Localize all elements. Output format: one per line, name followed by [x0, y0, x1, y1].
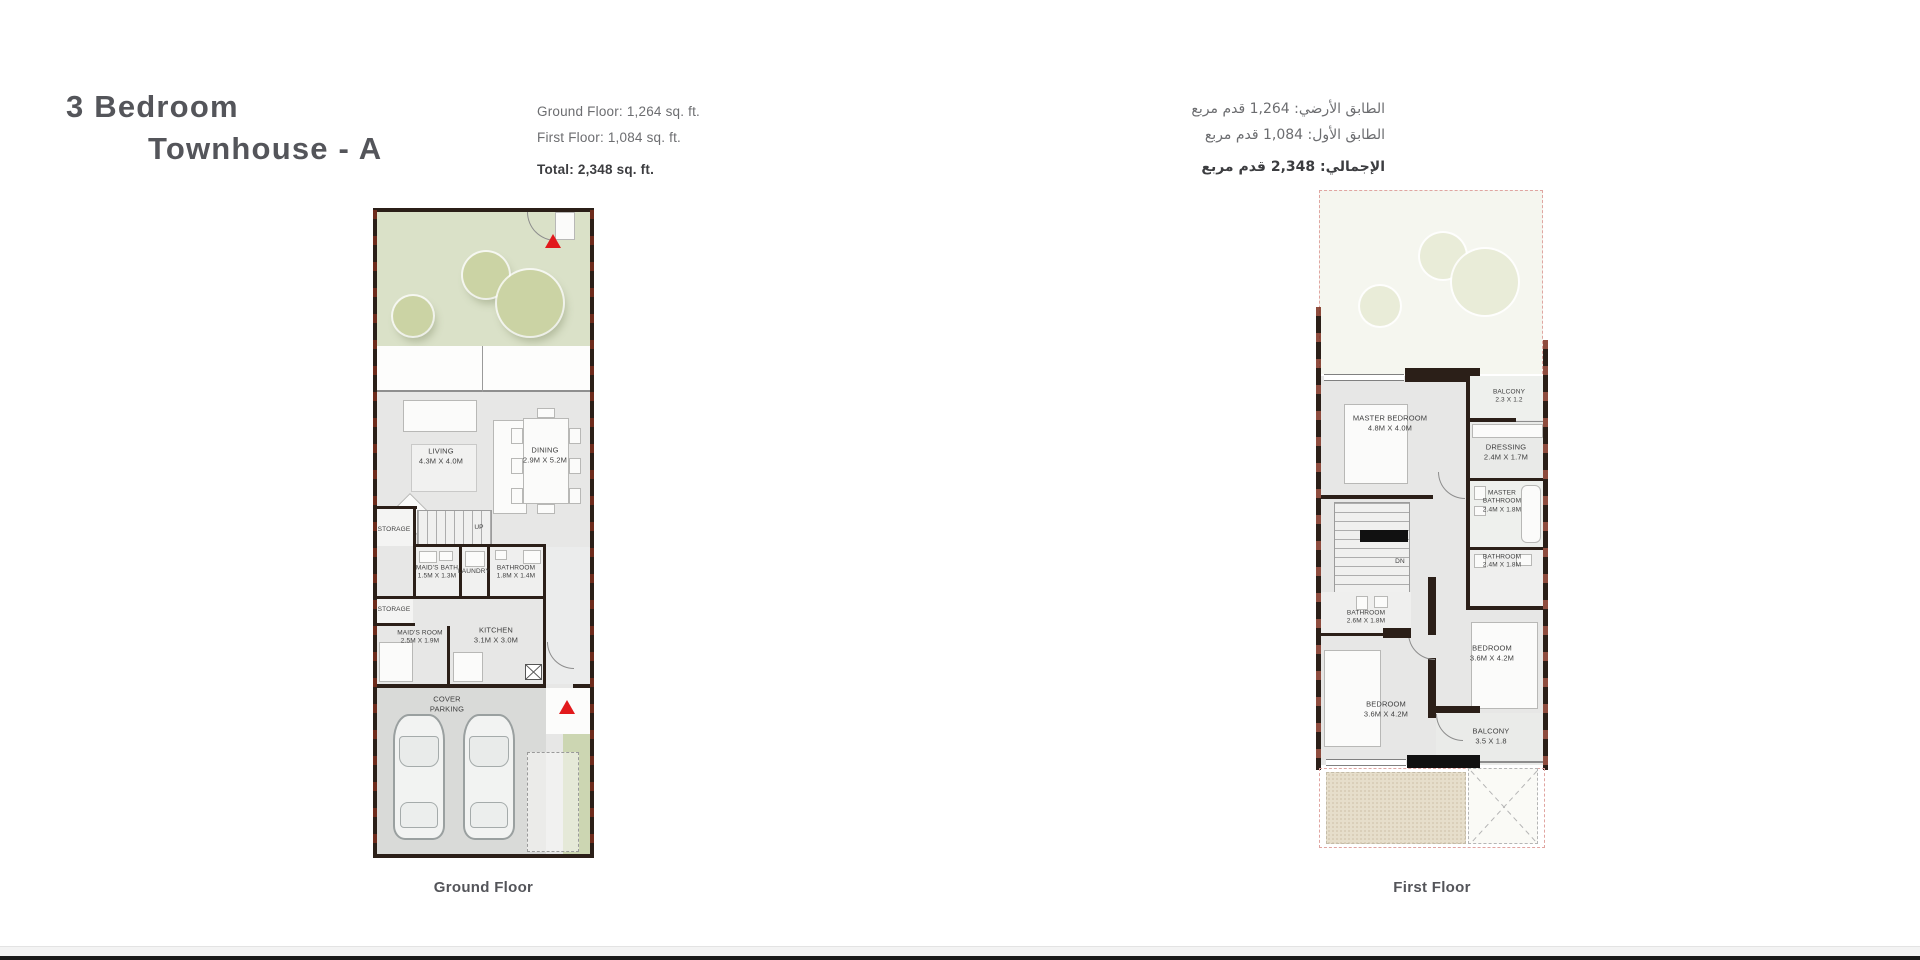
- chair: [537, 504, 555, 514]
- room-name: BATHROOM: [1347, 610, 1386, 618]
- room-dims: 2.9M X 5.2M: [523, 455, 567, 465]
- room-label-kitchen: KITCHEN 3.1M X 3.0M: [474, 625, 518, 645]
- room-label-living: LIVING 4.3M X 4.0M: [419, 446, 463, 466]
- room-name: LAUNDRY: [458, 568, 490, 576]
- room-dims: 2.4M X 1.8M: [1483, 562, 1522, 570]
- room-label-dressing: DRESSING 2.4M X 1.7M: [1484, 442, 1528, 462]
- wall: [1428, 577, 1436, 635]
- car-icon: [463, 714, 515, 840]
- page-title-line1: 3 Bedroom: [66, 86, 382, 128]
- wall: [1316, 307, 1321, 770]
- tree-icon: [393, 296, 433, 336]
- washing-machine: [465, 551, 485, 567]
- stairs-up-label: UP: [474, 524, 483, 532]
- room-name: BALCONY: [1493, 389, 1525, 397]
- wall: [1428, 658, 1436, 713]
- sink: [419, 551, 437, 563]
- page-title: 3 Bedroom Townhouse - A: [66, 86, 382, 170]
- ground-floor-area-en: Ground Floor: 1,264 sq. ft.: [537, 99, 700, 125]
- room-dims: 3.6M X 4.2M: [1470, 653, 1514, 663]
- room-dims: 2.6M X 1.8M: [1347, 618, 1386, 626]
- room-label-master-bedroom: MASTER BEDROOM 4.8M X 4.0M: [1353, 413, 1427, 433]
- room-dims: 2.3 X 1.2: [1493, 397, 1525, 405]
- patio-strip: [377, 346, 590, 392]
- wall: [377, 506, 417, 509]
- wall: [1470, 606, 1543, 610]
- room-name: BALCONY: [1473, 726, 1510, 736]
- room-name: BATHROOM: [1483, 554, 1522, 562]
- wall: [1383, 628, 1411, 638]
- window: [1326, 759, 1406, 766]
- room-label-laundry: LAUNDRY: [458, 568, 490, 576]
- ground-floor-caption: Ground Floor: [373, 879, 594, 896]
- room-label-dining: DINING 2.9M X 5.2M: [523, 445, 567, 465]
- open-to-below-area: [1468, 768, 1538, 844]
- room-dims: 4.8M X 4.0M: [1353, 423, 1427, 433]
- entrance-arrow-icon: [559, 700, 575, 714]
- first-floor-area-ar: الطابق الأول: 1,084 قدم مربع: [1191, 122, 1385, 148]
- wall: [377, 623, 415, 626]
- garden-view-below: [1319, 190, 1543, 374]
- room-name: KITCHEN: [474, 625, 518, 635]
- wall: [1321, 495, 1433, 499]
- wall: [590, 210, 594, 856]
- room-dims: 1.8M X 1.4M: [497, 573, 536, 581]
- room-label-storage-lower: STORAGE: [378, 606, 411, 614]
- room-name: BEDROOM: [1364, 699, 1408, 709]
- first-floor-caption: First Floor: [1316, 879, 1548, 896]
- footer-strip: [0, 946, 1920, 956]
- wall: [1407, 755, 1480, 768]
- pergola-outline: [527, 752, 579, 852]
- bed: [1471, 622, 1538, 709]
- wall: [413, 506, 416, 598]
- room-label-bathroom: BATHROOM 1.8M X 1.4M: [497, 565, 536, 582]
- room-label-cover-parking: COVER PARKING: [424, 694, 470, 714]
- chair: [569, 458, 581, 474]
- room-dims: 1.5M X 1.3M: [416, 573, 458, 581]
- garden-area: [377, 212, 590, 346]
- chair: [569, 428, 581, 444]
- balcony-rail: [1480, 761, 1543, 763]
- total-area-en: Total: 2,348 sq. ft.: [537, 157, 700, 183]
- tree-icon: [1360, 286, 1400, 326]
- tree-icon: [1452, 249, 1518, 315]
- wall: [377, 596, 546, 599]
- kitchen-counter: [453, 652, 483, 682]
- room-label-bedroom-left: BEDROOM 3.6M X 4.2M: [1364, 699, 1408, 719]
- toilet: [1356, 596, 1368, 610]
- first-floor-area-en: First Floor: 1,084 sq. ft.: [537, 125, 700, 151]
- room-dims: 3.5 X 1.8: [1473, 736, 1510, 746]
- room-dims: 4.3M X 4.0M: [419, 456, 463, 466]
- toilet: [495, 550, 507, 560]
- room-name: DINING: [523, 445, 567, 455]
- room-label-master-bathroom: MASTER BATHROOM 2.4M X 1.8M: [1478, 489, 1526, 514]
- toilet: [439, 551, 453, 561]
- ground-floor-plan: LIVING 4.3M X 4.0M DINING 2.9M X 5.2M ST…: [373, 208, 594, 858]
- terrace-sand-area: [1326, 772, 1466, 844]
- room-name: UP: [474, 524, 483, 532]
- room-name: STORAGE: [378, 606, 411, 614]
- shaft: [525, 664, 542, 680]
- room-label-balcony-bottom: BALCONY 3.5 X 1.8: [1473, 726, 1510, 746]
- wardrobe: [1472, 424, 1543, 438]
- brochure-page: 3 Bedroom Townhouse - A Ground Floor: 1,…: [0, 0, 1920, 960]
- room-name: COVER PARKING: [424, 694, 470, 714]
- stairs-down-label: DN: [1395, 558, 1405, 566]
- room-name: MASTER BEDROOM: [1353, 413, 1427, 423]
- room-dims: 3.1M X 3.0M: [474, 635, 518, 645]
- stairs-down: [1334, 502, 1410, 594]
- room-name: BATHROOM: [497, 565, 536, 573]
- car-icon: [393, 714, 445, 840]
- wall: [543, 544, 546, 686]
- patio-divider: [482, 346, 483, 392]
- room-name: DRESSING: [1484, 442, 1528, 452]
- tree-icon: [497, 270, 563, 336]
- stair-landing-wall: [1360, 530, 1408, 542]
- room-label-storage-upper: STORAGE: [378, 526, 411, 534]
- room-name: MAID'S ROOM: [397, 630, 443, 638]
- window: [1324, 374, 1404, 381]
- room-label-bathroom-right: BATHROOM 2.4M X 1.8M: [1483, 554, 1522, 571]
- room-label-maids-room: MAID'S ROOM 2.5M X 1.9M: [397, 630, 443, 647]
- room-label-balcony-top: BALCONY 2.3 X 1.2: [1493, 389, 1525, 406]
- sink: [523, 550, 541, 564]
- chair: [537, 408, 555, 418]
- first-floor-plan: BALCONY 2.3 X 1.2 MASTER BEDROOM 4.8M X …: [1316, 190, 1548, 852]
- room-name: MAID'S BATH: [416, 565, 458, 573]
- room-dims: 2.4M X 1.7M: [1484, 452, 1528, 462]
- page-title-line2: Townhouse - A: [66, 128, 382, 170]
- wall: [447, 626, 450, 684]
- room-label-bathroom-left: BATHROOM 2.6M X 1.8M: [1347, 610, 1386, 627]
- room-name: STORAGE: [378, 526, 411, 534]
- room-name: BEDROOM: [1470, 643, 1514, 653]
- area-stats-arabic: الطابق الأرضي: 1,264 قدم مربع الطابق الأ…: [1191, 96, 1385, 180]
- chair: [511, 428, 523, 444]
- wall: [1543, 340, 1548, 770]
- room-dims: 2.4M X 1.8M: [1478, 506, 1526, 514]
- area-stats-english: Ground Floor: 1,264 sq. ft. First Floor:…: [537, 99, 700, 183]
- x-mark-icon: [526, 665, 541, 679]
- entrance-arrow-icon: [545, 234, 561, 248]
- chair: [569, 488, 581, 504]
- sink: [1374, 596, 1388, 608]
- room-name: LIVING: [419, 446, 463, 456]
- x-cross-icon: [1469, 769, 1539, 845]
- sofa: [403, 400, 477, 432]
- bed: [379, 642, 413, 682]
- room-label-bedroom-right: BEDROOM 3.6M X 4.2M: [1470, 643, 1514, 663]
- chair: [511, 458, 523, 474]
- ground-floor-area-ar: الطابق الأرضي: 1,264 قدم مربع: [1191, 96, 1385, 122]
- footer-edge: [0, 956, 1920, 960]
- room-dims: 2.5M X 1.9M: [397, 638, 443, 646]
- chair: [511, 488, 523, 504]
- total-area-ar: الإجمالي: 2,348 قدم مربع: [1191, 154, 1385, 180]
- wall: [413, 544, 545, 547]
- room-name: DN: [1395, 558, 1405, 566]
- room-name: MASTER BATHROOM: [1478, 489, 1526, 506]
- room-label-maids-bath: MAID'S BATH 1.5M X 1.3M: [416, 565, 458, 582]
- room-dims: 3.6M X 4.2M: [1364, 709, 1408, 719]
